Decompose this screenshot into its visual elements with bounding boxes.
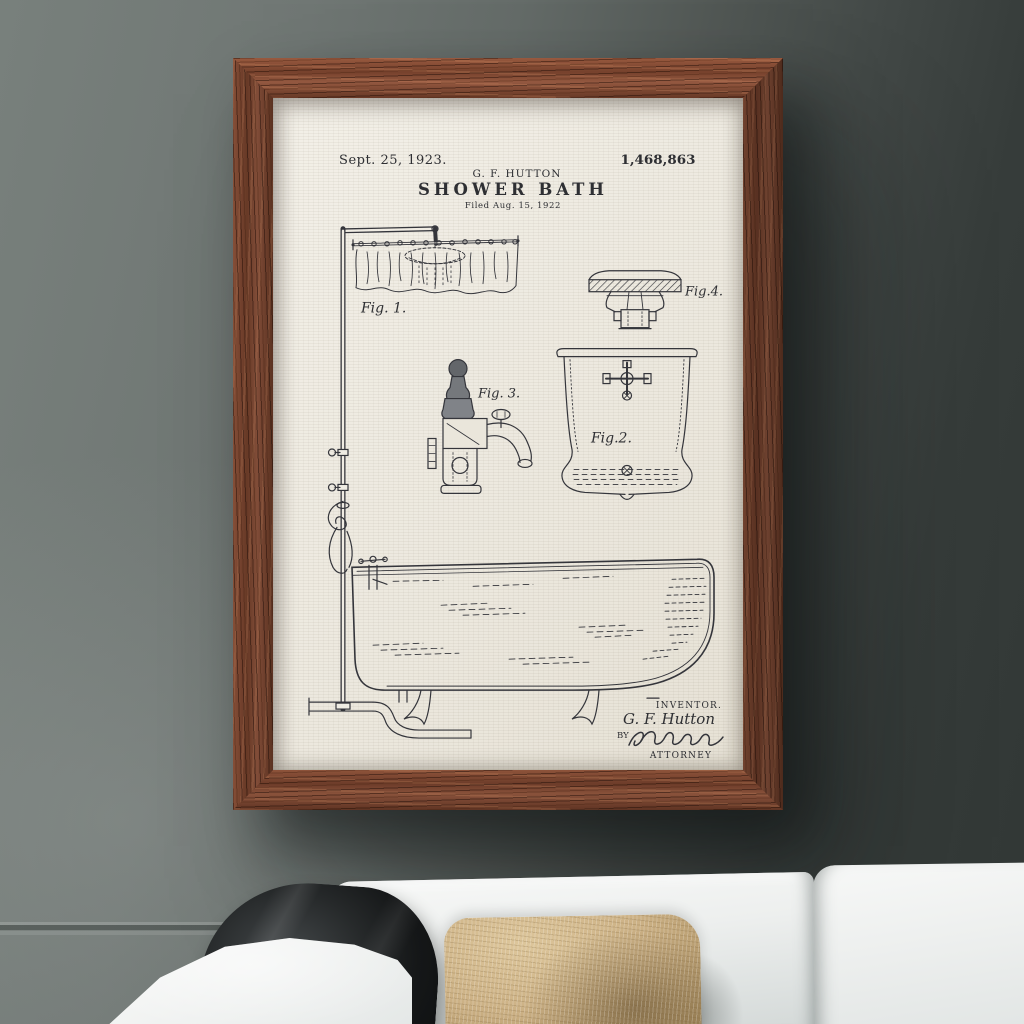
patent-title: SHOWER BATH	[418, 180, 608, 199]
drain-piping	[309, 690, 471, 738]
inventor-signature: G. F. Hutton	[623, 710, 715, 728]
header-text: Sept. 25, 1923. 1,468,863 G. F. HUTTON S…	[339, 152, 695, 211]
bathtub	[352, 556, 714, 724]
sofa-back-cushion-right	[813, 862, 1024, 1024]
frame-edge-left	[233, 58, 273, 810]
fig3-label: Fig. 3.	[477, 387, 520, 402]
patent-print-canvas: Sept. 25, 1923. 1,468,863 G. F. HUTTON S…	[273, 98, 743, 770]
patent-date: Sept. 25, 1923.	[339, 153, 447, 168]
attorney-caption: ATTORNEY	[649, 751, 712, 761]
tan-pillow	[444, 914, 703, 1024]
attorney-squiggle	[629, 732, 723, 746]
frame-edge-top	[233, 58, 783, 98]
room-scene: Sept. 25, 1923. 1,468,863 G. F. HUTTON S…	[0, 0, 1024, 1024]
picture-frame: Sept. 25, 1923. 1,468,863 G. F. HUTTON S…	[233, 58, 783, 810]
patent-number: 1,468,863	[620, 152, 695, 168]
pipe-clamp-hook	[328, 501, 352, 573]
filed-line: Filed Aug. 15, 1922	[465, 201, 561, 211]
standpipe	[328, 229, 352, 709]
signature-block: INVENTOR. G. F. Hutton BY ATTORNEY	[617, 701, 722, 761]
fig2-valve-cross	[603, 361, 651, 400]
fig1-label: Fig. 1.	[360, 301, 406, 317]
fig2-hood	[557, 349, 697, 500]
fig1-shower-curtain	[343, 226, 518, 294]
tub-faucet	[359, 556, 387, 589]
by-label: BY	[617, 731, 629, 741]
fig4-mount	[589, 271, 681, 329]
tub-claw-foot	[404, 690, 431, 724]
fig4-label: Fig.4.	[684, 285, 723, 300]
frame-edge-right	[743, 58, 783, 810]
fig2-label: Fig.2.	[590, 430, 632, 446]
patent-drawing: Sept. 25, 1923. 1,468,863 G. F. HUTTON S…	[273, 98, 743, 770]
inventor-line: G. F. HUTTON	[473, 168, 562, 180]
frame-edge-bottom	[233, 770, 783, 810]
figure-labels: Fig. 1. Fig.4. Fig.2. Fig. 3.	[360, 285, 723, 447]
fig3-valve	[428, 360, 532, 494]
tub-claw-foot	[572, 690, 599, 724]
